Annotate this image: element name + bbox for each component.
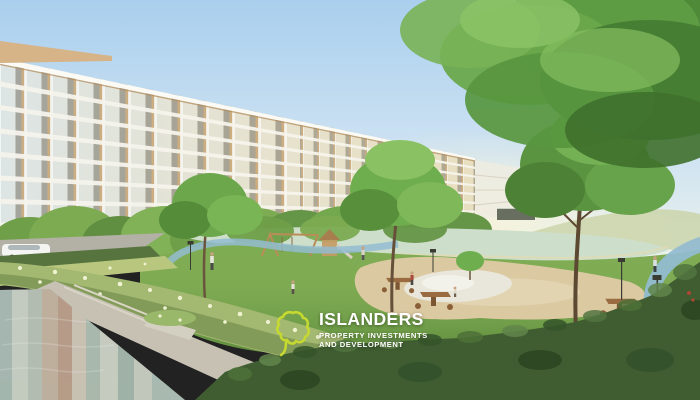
- rendering-canvas: ISLANDERS PROPERTY INVESTMENTS AND DEVEL…: [0, 0, 700, 400]
- logo-brand-name: ISLANDERS: [319, 310, 428, 328]
- logo-tagline-line2: AND DEVELOPMENT: [319, 340, 428, 349]
- person-figure: [210, 252, 214, 270]
- island-outline-icon: [274, 310, 312, 358]
- person-figure: [410, 271, 413, 285]
- person-figure: [291, 280, 294, 294]
- person-figure: [361, 246, 364, 260]
- logo-tagline-line1: PROPERTY INVESTMENTS: [319, 331, 428, 340]
- person-figure-jogger: [653, 256, 657, 272]
- islanders-logo: ISLANDERS PROPERTY INVESTMENTS AND DEVEL…: [274, 310, 428, 358]
- person-figure: [454, 287, 457, 297]
